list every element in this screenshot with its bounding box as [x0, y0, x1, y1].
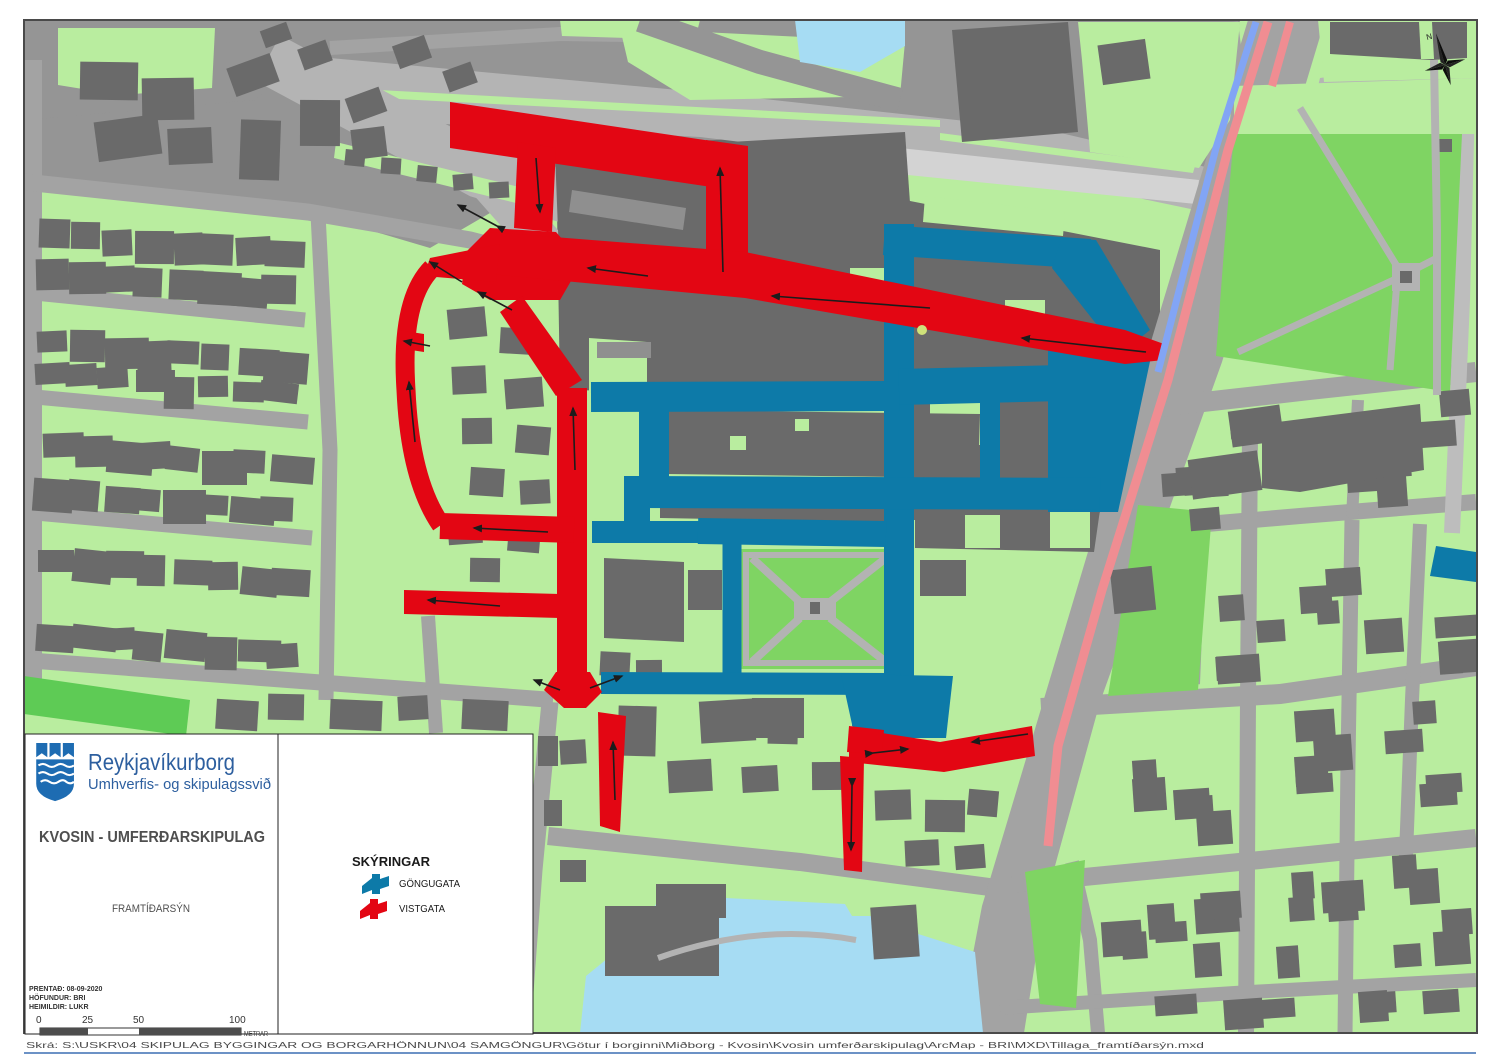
svg-text:FRAMTÍÐARSÝN: FRAMTÍÐARSÝN: [112, 902, 190, 915]
svg-text:Skrá: S:\USKR\04 SKIPULAG BYGG: Skrá: S:\USKR\04 SKIPULAG BYGGINGAR OG B…: [26, 1040, 1205, 1050]
svg-text:KVOSIN - UMFERÐARSKIPULAG: KVOSIN - UMFERÐARSKIPULAG: [39, 829, 265, 846]
svg-text:METRAR: METRAR: [244, 1031, 268, 1038]
svg-text:50: 50: [133, 1015, 145, 1026]
svg-text:HÖFUNDUR: BRI: HÖFUNDUR: BRI: [29, 993, 85, 1002]
svg-text:25: 25: [82, 1015, 94, 1026]
svg-text:Umhverfis- og skipulagssvið: Umhverfis- og skipulagssvið: [88, 777, 271, 793]
svg-text:0: 0: [36, 1015, 42, 1026]
svg-text:HEIMILDIR: LUKR: HEIMILDIR: LUKR: [29, 1004, 89, 1011]
svg-text:GÖNGUGATA: GÖNGUGATA: [399, 878, 460, 890]
svg-text:VISTGATA: VISTGATA: [399, 903, 445, 915]
svg-text:SKÝRINGAR: SKÝRINGAR: [352, 854, 431, 869]
svg-text:PRENTAÐ: 08-09-2020: PRENTAÐ: 08-09-2020: [29, 986, 103, 993]
svg-text:100: 100: [229, 1015, 246, 1026]
svg-text:Reykjavíkurborg: Reykjavíkurborg: [88, 749, 235, 775]
